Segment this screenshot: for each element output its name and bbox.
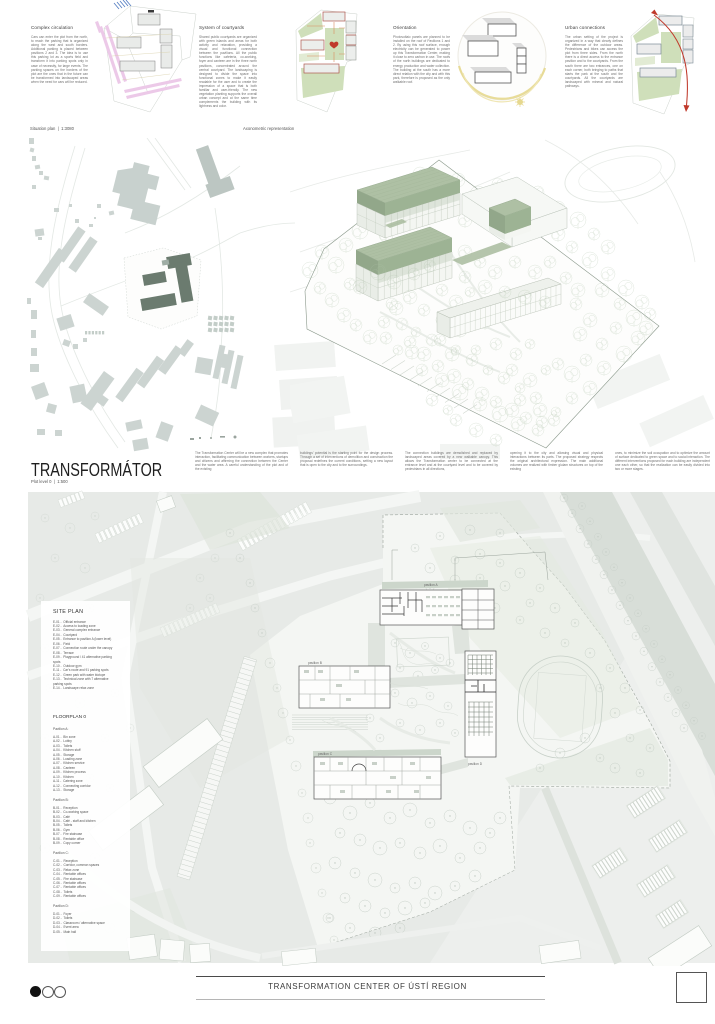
svg-text:pavilion B: pavilion B [308,661,322,665]
svg-text:pavilion D: pavilion D [468,762,483,766]
svg-text:pavilion C: pavilion C [318,752,333,756]
svg-text:pavilion A: pavilion A [424,583,439,587]
